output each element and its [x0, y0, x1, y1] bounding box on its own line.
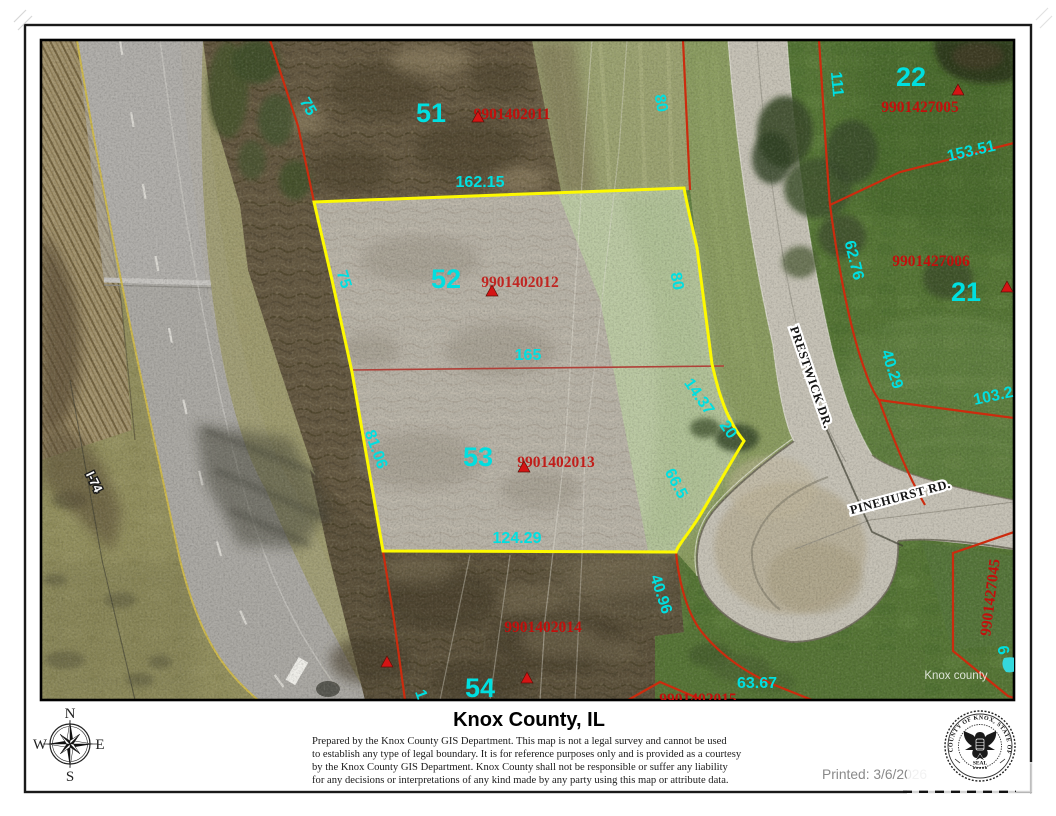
- svg-text:9901427005: 9901427005: [881, 99, 959, 116]
- svg-text:52: 52: [431, 264, 461, 294]
- svg-text:9901427006: 9901427006: [892, 253, 970, 270]
- svg-text:111: 111: [827, 71, 846, 97]
- svg-text:9901402014: 9901402014: [504, 619, 582, 636]
- svg-text:165: 165: [515, 347, 542, 364]
- svg-text:21: 21: [951, 277, 981, 307]
- svg-text:9901402013: 9901402013: [517, 454, 595, 471]
- svg-text:N: N: [65, 706, 76, 722]
- svg-text:22: 22: [896, 62, 926, 92]
- svg-text:to establish any type of legal: to establish any type of legal boundary.…: [312, 749, 742, 760]
- svg-text:for any decisions or interpret: for any decisions or interpretations of …: [312, 775, 729, 786]
- svg-text:53: 53: [463, 442, 493, 472]
- svg-text:SEAL: SEAL: [973, 761, 988, 767]
- svg-text:Knox County, IL: Knox County, IL: [453, 709, 605, 731]
- svg-text:80: 80: [651, 93, 671, 114]
- svg-text:124.29: 124.29: [493, 530, 542, 547]
- svg-text:W: W: [33, 737, 48, 753]
- svg-text:80: 80: [667, 271, 687, 292]
- svg-text:Knox county: Knox county: [924, 670, 988, 682]
- svg-text:54: 54: [465, 673, 495, 703]
- svg-text:63.67: 63.67: [737, 675, 777, 692]
- svg-text:51: 51: [416, 98, 446, 128]
- svg-text:S: S: [66, 769, 74, 785]
- svg-text:by the Knox County GIS Departm: by the Knox County GIS Department. Knox …: [312, 762, 729, 773]
- svg-text:Prepared by the Knox County GI: Prepared by the Knox County GIS Departme…: [312, 736, 727, 747]
- svg-text:9901402011: 9901402011: [474, 106, 551, 123]
- svg-text:E: E: [95, 737, 104, 753]
- svg-text:162.15: 162.15: [456, 174, 505, 191]
